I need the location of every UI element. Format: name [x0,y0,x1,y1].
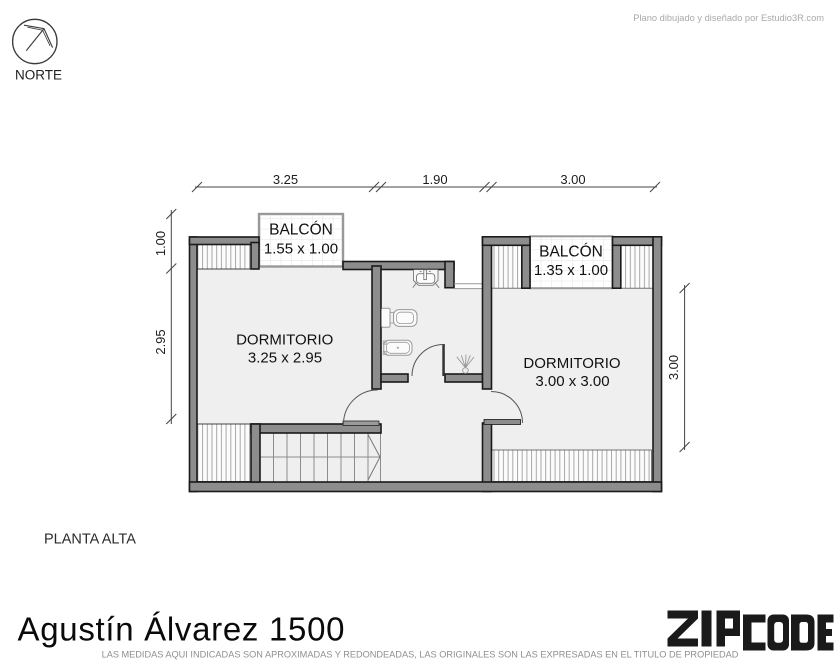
svg-text:3.00: 3.00 [666,355,681,380]
svg-text:1.00: 1.00 [153,231,168,256]
svg-text:LAS MEDIDAS AQUI INDICADAS SON: LAS MEDIDAS AQUI INDICADAS SON APROXIMAD… [102,650,739,660]
svg-text:1.35 x 1.00: 1.35 x 1.00 [534,262,608,279]
svg-text:NORTE: NORTE [15,68,62,83]
svg-text:2.95: 2.95 [153,329,168,354]
svg-text:3.25: 3.25 [273,172,298,187]
svg-text:3.00: 3.00 [560,172,585,187]
svg-text:BALCÓN: BALCÓN [269,222,333,239]
svg-text:DORMITORIO: DORMITORIO [523,355,620,372]
svg-text:BALCÓN: BALCÓN [539,244,603,261]
svg-text:3.00 x 3.00: 3.00 x 3.00 [535,373,609,390]
svg-text:Agustín Álvarez 1500: Agustín Álvarez 1500 [18,611,346,648]
svg-text:DORMITORIO: DORMITORIO [236,332,333,349]
svg-text:1.55 x 1.00: 1.55 x 1.00 [264,241,338,258]
svg-text:1.90: 1.90 [422,172,447,187]
svg-text:Plano dibujado y diseñado por: Plano dibujado y diseñado por Estudio3R.… [633,13,824,23]
svg-text:3.25 x 2.95: 3.25 x 2.95 [248,350,322,367]
svg-text:PLANTA ALTA: PLANTA ALTA [44,532,136,548]
